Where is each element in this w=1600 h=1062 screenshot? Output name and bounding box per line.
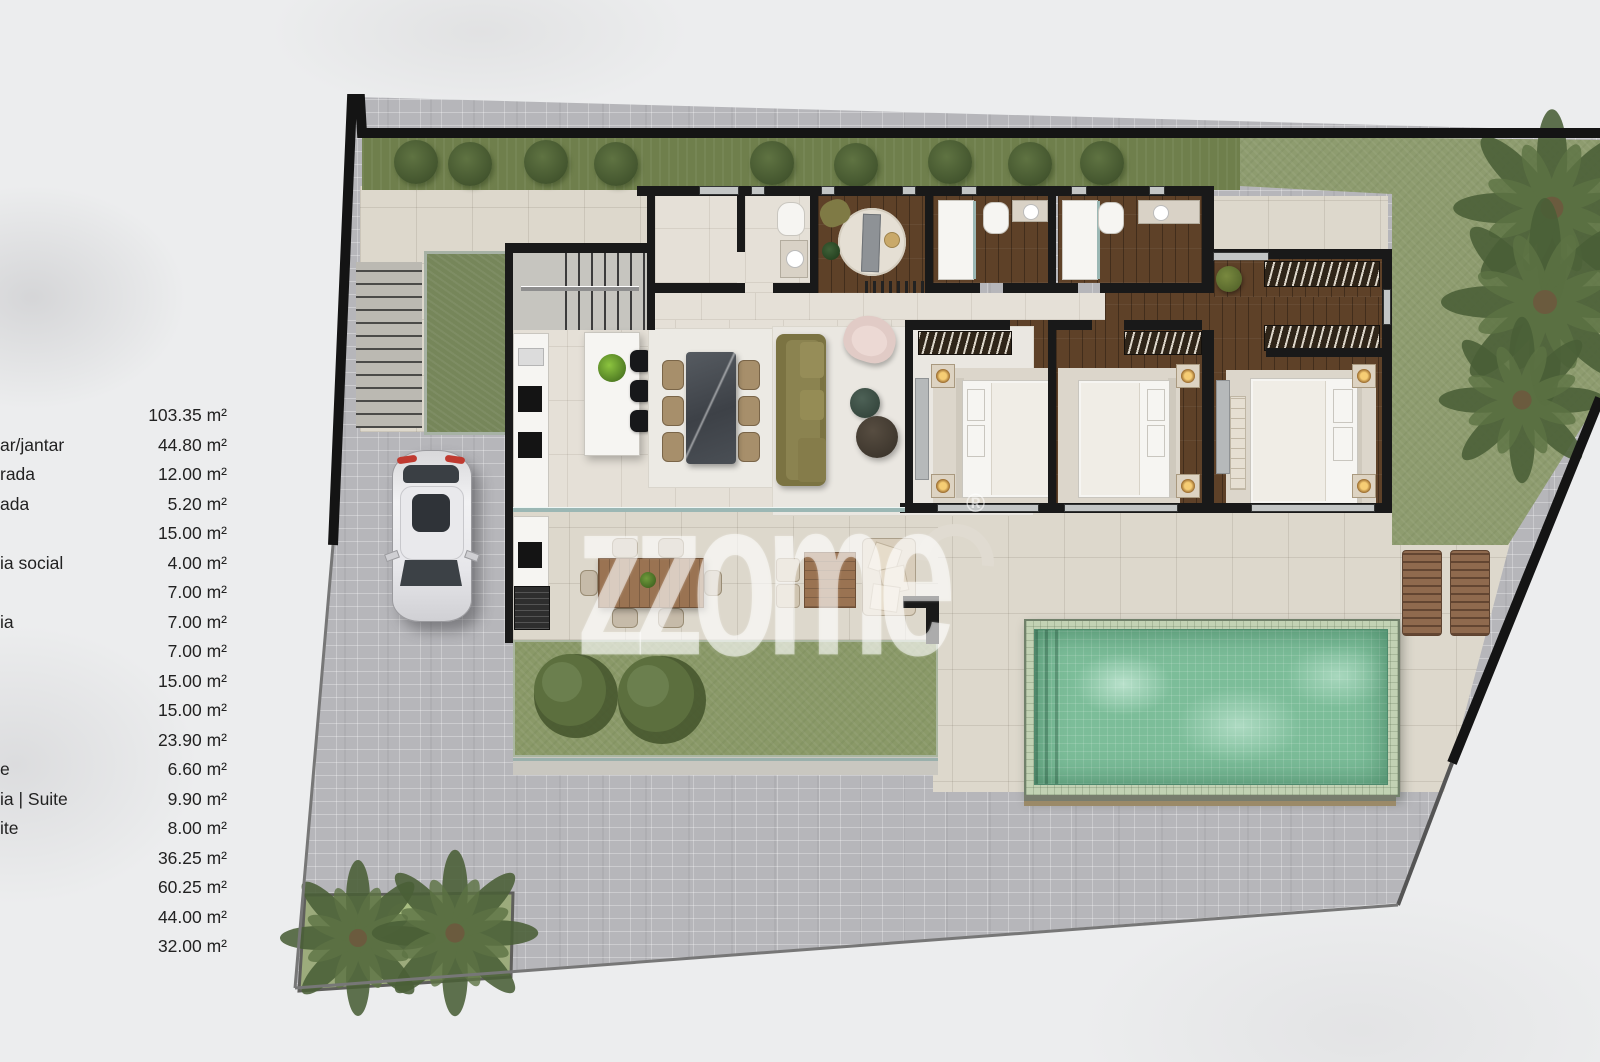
area-row: 32.00 m² (0, 932, 227, 962)
dining-chair (738, 360, 760, 390)
terrace-pouf (776, 558, 800, 582)
area-row: 60.25 m² (0, 873, 227, 903)
area-row-value: 103.35 m² (148, 405, 227, 426)
pool-steps (1035, 630, 1065, 784)
area-row-value: 60.25 m² (158, 877, 227, 898)
garden-glass-edge (513, 758, 938, 761)
area-row-value: 32.00 m² (158, 936, 227, 957)
wall-closet-master-divider (1266, 348, 1382, 357)
area-row-value: 44.00 m² (158, 907, 227, 928)
closet-pouf (1216, 266, 1242, 292)
window (1150, 187, 1164, 194)
kitchen-cooktop (518, 432, 542, 458)
hedge-bush (1008, 142, 1052, 186)
bed-duvet (1253, 381, 1326, 501)
master-bed (1250, 378, 1358, 504)
window-bedroom2-south (1065, 505, 1177, 511)
terrace-table-plant (640, 572, 656, 588)
bed-pillow (1147, 425, 1165, 457)
hedge-bush (448, 142, 492, 186)
sofa-cushion (800, 342, 824, 378)
shower-glass (973, 201, 976, 279)
kitchen-oven (518, 386, 542, 412)
wall-stair-north (505, 243, 653, 253)
parked-car (392, 450, 470, 620)
area-row: ia | Suite 9.90 m² (0, 785, 227, 815)
wall-bedroom2-east-upper (1202, 257, 1214, 290)
area-row-value: 5.20 m² (168, 494, 227, 515)
area-row-value: 36.25 m² (158, 848, 227, 869)
sofa-olive (776, 334, 826, 486)
area-row-label: ia social (0, 553, 63, 574)
entry-slat-bench (865, 281, 927, 293)
bedroom1-bed (962, 380, 1050, 498)
outdoor-kitchen-appliance (518, 542, 542, 568)
window (1072, 187, 1086, 194)
pool (1024, 619, 1400, 797)
lounge-cushion (869, 583, 900, 613)
area-row: 23.90 m² (0, 726, 227, 756)
hedge-bush (594, 142, 638, 186)
nightstand-lamp (1176, 474, 1200, 498)
bed-duvet (991, 383, 1048, 495)
pool-deck-edge (1024, 801, 1396, 806)
area-row-label: rada (0, 464, 35, 485)
area-row-value: 4.00 m² (168, 553, 227, 574)
area-row-value: 44.80 m² (158, 435, 227, 456)
bed-pillow (1333, 427, 1353, 461)
bathroom2-shower (1062, 200, 1098, 280)
outdoor-grill (514, 586, 550, 630)
wall-terrace-corner-b (926, 608, 939, 644)
wall-toprow-south-4 (1003, 283, 1078, 293)
sun-lounger (1402, 550, 1442, 636)
island-plant (598, 354, 626, 382)
bathroom2-toilet (1098, 202, 1124, 234)
window (700, 187, 738, 194)
dining-chair (662, 432, 684, 462)
bathroom1-toilet (983, 202, 1009, 234)
stair-treads (565, 253, 647, 330)
area-row: 15.00 m² (0, 696, 227, 726)
area-row-value: 15.00 m² (158, 700, 227, 721)
coffee-table-green (850, 388, 880, 418)
area-row-label: ada (0, 494, 29, 515)
nightstand-lamp (1352, 364, 1376, 388)
bed-pillow (1147, 389, 1165, 421)
hedge-bush (1080, 141, 1124, 185)
terrace-pouf (776, 584, 800, 608)
south-garden-lawn (513, 640, 938, 757)
outdoor-steps (356, 262, 422, 428)
wall-toprow-south-3 (925, 283, 980, 293)
wall-bedroom2-east-lower (1202, 330, 1214, 509)
area-row: 7.00 m² (0, 637, 227, 667)
master-bench (1230, 396, 1246, 490)
area-row-value: 7.00 m² (168, 612, 227, 633)
wall-bedroom1-west (905, 320, 913, 509)
armchair-cushion (848, 321, 892, 361)
wc-basin (786, 250, 804, 268)
wall-terrace-corner-a (903, 596, 939, 608)
wall-bedroom1-north (905, 320, 1010, 330)
area-row: 44.00 m² (0, 903, 227, 933)
wc-vanity (780, 240, 808, 278)
area-row-label: ite (0, 818, 18, 839)
area-row: ia 7.00 m² (0, 608, 227, 638)
stair-railing (521, 287, 639, 291)
terrace-chair (612, 608, 638, 628)
window-master-south (1252, 505, 1374, 511)
entry-basket (884, 232, 900, 248)
area-row-value: 6.60 m² (168, 759, 227, 780)
wall-east (1382, 249, 1392, 513)
wall-bedroom2-north-a (1056, 320, 1092, 330)
bed-pillow (1333, 389, 1353, 423)
wall-toprow-south-1 (647, 283, 745, 293)
entry-console (861, 214, 881, 273)
north-hedge (362, 138, 1240, 190)
wall-toprow-south-5 (1100, 283, 1212, 293)
area-row: 36.25 m² (0, 844, 227, 874)
area-row: ia social 4.00 m² (0, 549, 227, 579)
car-sunroof (412, 494, 450, 532)
car-windshield (400, 560, 462, 586)
area-row: ite 8.00 m² (0, 814, 227, 844)
terrace-chair (658, 608, 684, 628)
bathroom1-shower (938, 200, 974, 280)
area-row-value: 23.90 m² (158, 730, 227, 751)
terrace-chair (580, 570, 598, 596)
hedge-bush (750, 141, 794, 185)
glass-sliding-wall (513, 507, 905, 512)
area-row: rada 12.00 m² (0, 460, 227, 490)
area-row-value: 15.00 m² (158, 671, 227, 692)
bedroom1-tv-cabinet (915, 378, 929, 480)
area-row-value: 7.00 m² (168, 582, 227, 603)
window (822, 187, 834, 194)
area-row: ada 5.20 m² (0, 490, 227, 520)
dining-chair (662, 396, 684, 426)
hedge-bush (834, 143, 878, 187)
area-row: ar/jantar 44.80 m² (0, 431, 227, 461)
terrace-chair (704, 570, 722, 596)
north-east-terrace-paving (1212, 196, 1388, 257)
bed-pillow (967, 425, 985, 457)
car-rear-window (403, 465, 459, 483)
window (903, 187, 915, 194)
area-row-value: 15.00 m² (158, 523, 227, 544)
ne-terrace-sill (1214, 253, 1268, 260)
bed-pillow (967, 389, 985, 421)
area-row: 7.00 m² (0, 578, 227, 608)
sofa-chaise (798, 438, 826, 482)
nightstand-lamp (1352, 474, 1376, 498)
area-row-label: ar/jantar (0, 435, 64, 456)
closet-wardrobe-north (1264, 261, 1380, 287)
pool-water (1034, 629, 1388, 785)
side-planter (424, 251, 512, 435)
floor-plan-page: zzome ® 103.35 m² ar/jantar 44.80 m² rad… (0, 0, 1600, 1062)
bedroom2-wardrobe (1124, 331, 1202, 355)
area-row-value: 7.00 m² (168, 641, 227, 662)
area-table: 103.35 m² ar/jantar 44.80 m² rada 12.00 … (0, 401, 227, 962)
wall-wc-east (810, 196, 818, 283)
hedge-bush (524, 140, 568, 184)
dining-chair (662, 360, 684, 390)
wc-toilet (777, 202, 805, 236)
hedge-bush (394, 140, 438, 184)
sofa-cushion (800, 390, 824, 420)
coffee-table-brown (856, 416, 898, 458)
bedroom1-wardrobe (918, 331, 1012, 355)
nightstand-lamp (931, 364, 955, 388)
bed-duvet (1081, 383, 1140, 495)
area-row: 15.00 m² (0, 519, 227, 549)
wall-bath-divider (1048, 196, 1056, 283)
window-bedroom1-south (938, 505, 1038, 511)
area-row-value: 8.00 m² (168, 818, 227, 839)
hedge-bush (928, 140, 972, 184)
area-row: 103.35 m² (0, 401, 227, 431)
nightstand-lamp (931, 474, 955, 498)
area-row: e 6.60 m² (0, 755, 227, 785)
window-east (1384, 290, 1390, 324)
nightstand-lamp (1176, 364, 1200, 388)
terrace-chair (658, 538, 684, 558)
watermark-registered-icon: ® (966, 488, 985, 519)
dining-table-marble (686, 352, 736, 464)
wall-west (505, 243, 513, 643)
wall-entry-east (925, 196, 933, 283)
dining-chair (738, 432, 760, 462)
area-row-label: e (0, 759, 10, 780)
pantry-floor (655, 196, 737, 283)
master-tv-cabinet (1216, 380, 1230, 474)
window (962, 187, 976, 194)
area-row-label: ia (0, 612, 14, 633)
entry-plant (822, 242, 840, 260)
terrace-coffee-table (804, 552, 856, 608)
bathroom2-vanity (1138, 200, 1200, 224)
area-row: 15.00 m² (0, 667, 227, 697)
bedroom2-bed (1078, 380, 1170, 498)
area-row-label: ia | Suite (0, 789, 68, 810)
terrace-chair (612, 538, 638, 558)
wall-bedroom-divider-1 (1048, 320, 1056, 509)
wall-bedroom2-north-b (1124, 320, 1202, 330)
interior-staircase (513, 253, 647, 330)
window (752, 187, 764, 194)
wall-wc-west (737, 196, 745, 252)
sun-lounger (1450, 550, 1490, 636)
bathroom1-vanity (1012, 200, 1048, 222)
bathroom2-basin (1153, 205, 1169, 221)
area-row-value: 12.00 m² (158, 464, 227, 485)
kitchen-sink (518, 348, 544, 366)
wall-pantry-west (647, 186, 655, 330)
dining-chair (738, 396, 760, 426)
bathroom1-basin (1023, 204, 1039, 220)
area-row-value: 9.90 m² (168, 789, 227, 810)
wall-toprow-south-2 (773, 283, 818, 293)
